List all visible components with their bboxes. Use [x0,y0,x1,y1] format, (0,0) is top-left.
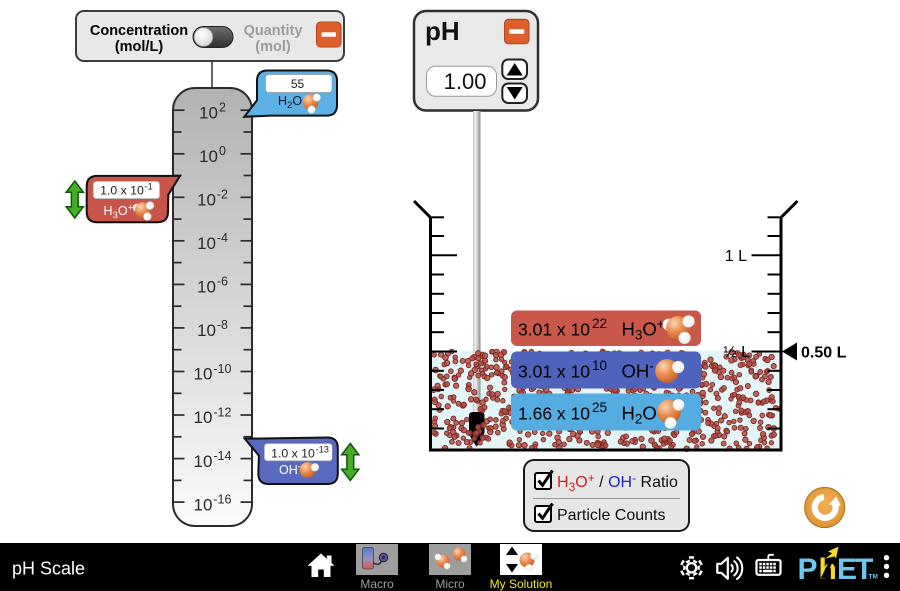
svg-text:-2: -2 [217,188,228,202]
svg-text:-16: -16 [213,492,231,506]
svg-text:10: 10 [197,191,216,210]
svg-text:3.01 x 10: 3.01 x 10 [518,320,590,340]
svg-text:My Solution: My Solution [490,577,553,591]
svg-text:10: 10 [199,147,218,166]
svg-text:10: 10 [592,358,607,373]
svg-text:10: 10 [194,495,213,514]
svg-text:10: 10 [199,103,218,122]
svg-text:-1: -1 [145,181,153,191]
svg-text:OH-: OH- [279,462,301,478]
svg-text:10: 10 [197,278,216,297]
svg-text:Macro: Macro [360,577,394,591]
svg-text:-13: -13 [316,444,329,454]
svg-text:pH Scale: pH Scale [12,559,85,579]
svg-text:0.50 L: 0.50 L [801,345,847,362]
svg-text:Concentration: Concentration [90,23,188,39]
svg-text:Particle Counts: Particle Counts [557,507,666,524]
svg-text:3.01 x 10: 3.01 x 10 [518,362,590,382]
svg-text:-8: -8 [217,318,228,332]
svg-text:H3O+ / OH- Ratio: H3O+ / OH- Ratio [557,471,678,494]
svg-text:P: P [798,553,818,586]
svg-text:-6: -6 [217,275,228,289]
svg-text:Micro: Micro [435,577,465,591]
svg-text:10: 10 [194,452,213,471]
svg-text:10: 10 [194,408,213,427]
svg-text:-4: -4 [217,231,228,245]
svg-text:(mol): (mol) [255,39,291,55]
svg-text:10: 10 [197,234,216,253]
svg-text:OH-: OH- [622,359,654,382]
svg-text:2: 2 [219,101,226,115]
svg-text:½ L: ½ L [723,344,750,361]
svg-text:1.66 x 10: 1.66 x 10 [518,404,590,424]
svg-text:-14: -14 [213,449,231,463]
svg-text:-12: -12 [213,405,231,419]
svg-text:E: E [837,553,857,586]
svg-text:pH: pH [425,16,460,46]
svg-text:25: 25 [592,400,607,415]
svg-text:T: T [855,553,873,586]
svg-text:55: 55 [291,77,305,91]
svg-text:1.0 x 10: 1.0 x 10 [100,183,144,197]
svg-text:10: 10 [197,321,216,340]
svg-text:22: 22 [592,316,607,331]
svg-text:1 L: 1 L [725,248,747,265]
svg-text:1.00: 1.00 [444,69,487,94]
svg-text:(mol/L): (mol/L) [115,39,163,55]
svg-text:10: 10 [194,365,213,384]
svg-text:0: 0 [219,144,226,158]
svg-text:TM: TM [869,574,878,581]
svg-text:-10: -10 [213,362,231,376]
svg-text:1.0 x 10: 1.0 x 10 [271,446,315,460]
svg-text:Quantity: Quantity [244,23,303,39]
